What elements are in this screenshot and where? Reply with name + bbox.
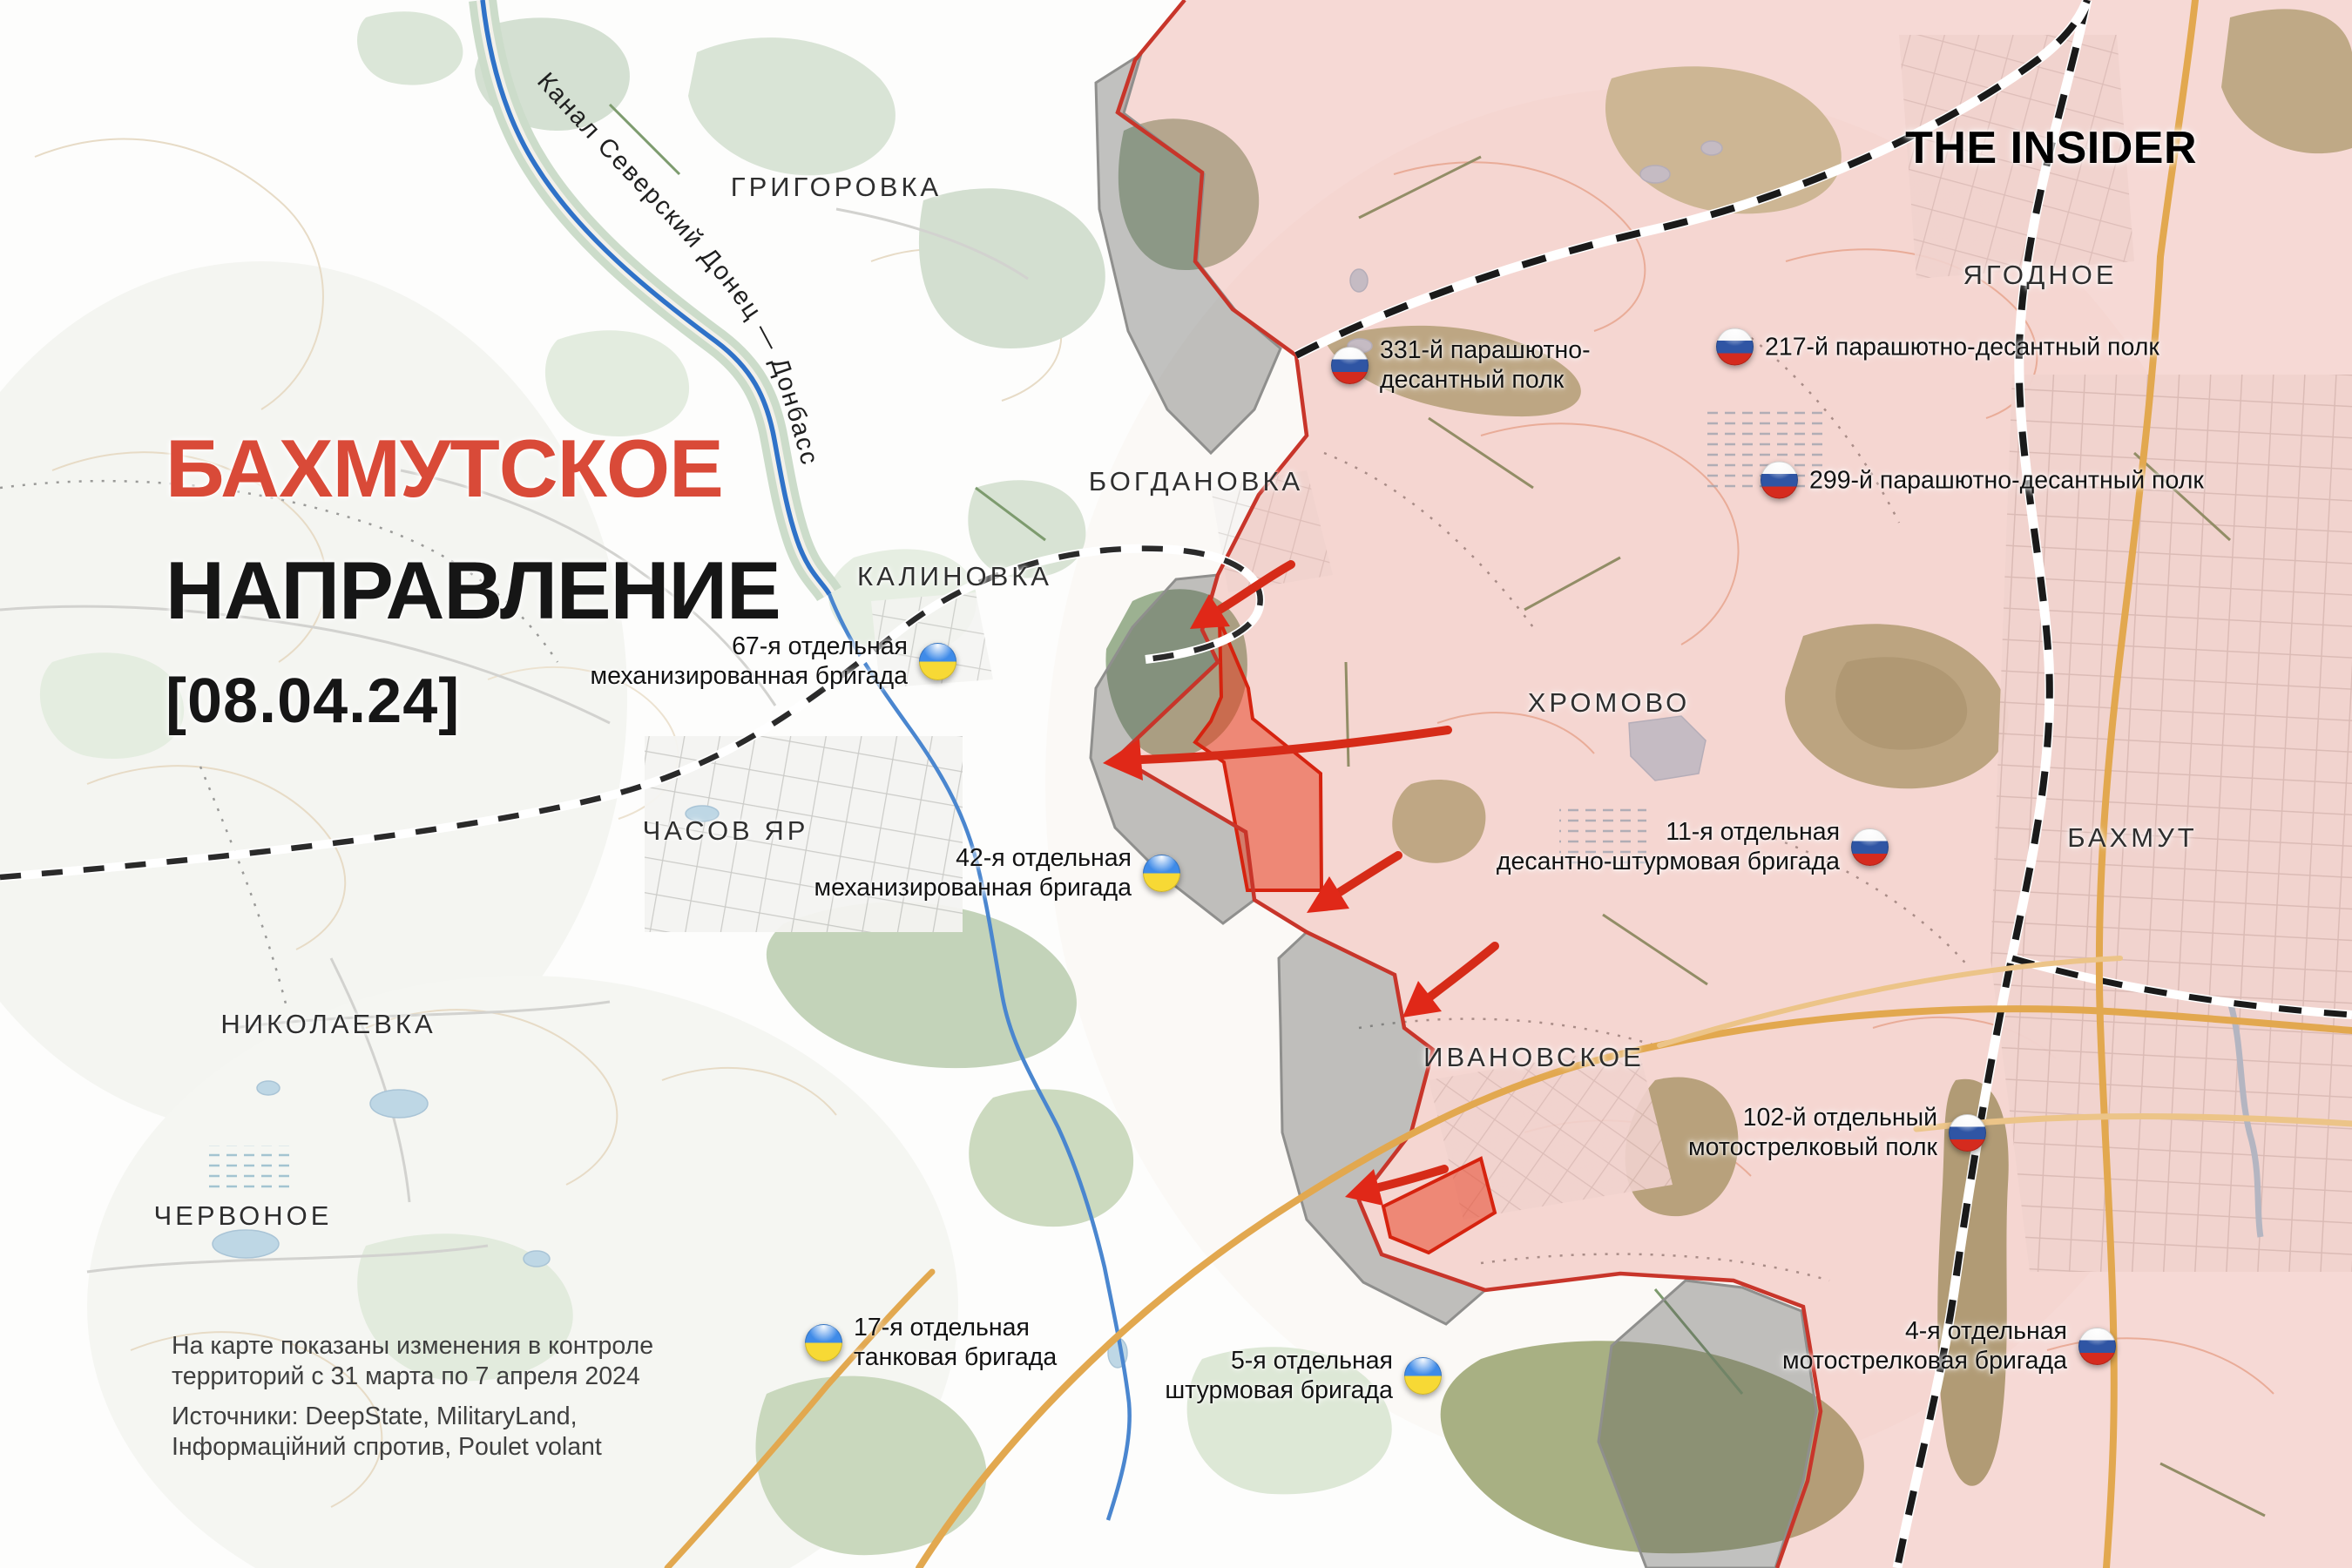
map-title: БАХМУТСКОЕ НАПРАВЛЕНИЕ [08.04.24] <box>166 408 781 737</box>
unit-label-42: 42-я отдельнаямеханизированная бригада <box>814 843 1181 902</box>
unit-label-17: 17-я отдельнаятанковая бригада <box>805 1313 1057 1372</box>
unit-label-text: 11-я отдельнаядесантно-штурмовая бригада <box>1497 817 1840 876</box>
place-label-yagodnoe: ЯГОДНОЕ <box>1963 260 2117 291</box>
unit-label-text: 17-я отдельнаятанковая бригада <box>854 1313 1057 1372</box>
unit-label-line: танковая бригада <box>854 1342 1057 1372</box>
unit-label-line: 331-й парашютно- <box>1380 335 1591 365</box>
russia-flag-icon <box>1949 1114 1986 1152</box>
unit-label-text: 42-я отдельнаямеханизированная бригада <box>814 843 1132 902</box>
bakhmut-direction-map: { "brand": {"logo": "THE INSIDER"}, "tit… <box>0 0 2352 1568</box>
footnote: На карте показаны изменения в контроле т… <box>172 1331 653 1463</box>
unit-label-text: 217-й парашютно-десантный полк <box>1765 332 2159 362</box>
footnote-sources-line-1: Источники: DeepState, MilitaryLand, <box>172 1402 653 1432</box>
unit-label-line: 4-я отдельная <box>1782 1316 2067 1346</box>
unit-label-text: 4-я отдельнаямотострелковая бригада <box>1782 1316 2067 1375</box>
unit-label-line: механизированная бригада <box>814 873 1132 902</box>
unit-label-11: 11-я отдельнаядесантно-штурмовая бригада <box>1497 817 1889 876</box>
unit-label-217: 217-й парашютно-десантный полк <box>1716 328 2159 366</box>
ukraine-flag-icon <box>1404 1357 1442 1395</box>
unit-label-line: мотострелковая бригада <box>1782 1346 2067 1375</box>
ukraine-flag-icon <box>1143 855 1180 892</box>
unit-label-line: десантно-штурмовая бригада <box>1497 847 1840 876</box>
unit-label-line: 17-я отдельная <box>854 1313 1057 1342</box>
russia-flag-icon <box>1851 828 1889 866</box>
russia-flag-icon <box>1331 347 1369 384</box>
footnote-note-line-1: На карте показаны изменения в контроле <box>172 1331 653 1362</box>
unit-label-line: 42-я отдельная <box>814 843 1132 873</box>
place-label-grigorovka: ГРИГОРОВКА <box>731 172 942 203</box>
unit-label-299: 299-й парашютно-десантный полк <box>1761 462 2204 499</box>
ukraine-flag-icon <box>805 1324 842 1362</box>
footnote-note-line-2: территорий с 31 марта по 7 апреля 2024 <box>172 1362 653 1392</box>
unit-label-4: 4-я отдельнаямотострелковая бригада <box>1782 1316 2116 1375</box>
russia-flag-icon <box>1716 328 1754 366</box>
title-line-2: НАПРАВЛЕНИЕ <box>166 530 781 652</box>
unit-label-text: 5-я отдельнаяштурмовая бригада <box>1165 1346 1393 1405</box>
brand-logo: THE INSIDER <box>1905 122 2197 174</box>
russia-flag-icon <box>1761 462 1798 499</box>
place-label-bogdanovka: БОГДАНОВКА <box>1089 466 1303 497</box>
place-label-bakhmut: БАХМУТ <box>2067 822 2197 854</box>
unit-label-line: 5-я отдельная <box>1165 1346 1393 1375</box>
russia-flag-icon <box>2078 1328 2116 1365</box>
unit-label-102: 102-й отдельныймотострелковый полк <box>1688 1103 1986 1162</box>
ukraine-flag-icon <box>919 643 956 680</box>
unit-label-text: 102-й отдельныймотострелковый полк <box>1688 1103 1937 1162</box>
place-label-chervonoe: ЧЕРВОНОЕ <box>154 1200 333 1232</box>
unit-label-line: 217-й парашютно-десантный полк <box>1765 332 2159 362</box>
unit-label-line: 299-й парашютно-десантный полк <box>1809 465 2204 495</box>
unit-label-line: мотострелковый полк <box>1688 1132 1937 1162</box>
unit-label-text: 299-й парашютно-десантный полк <box>1809 465 2204 495</box>
unit-label-line: штурмовая бригада <box>1165 1375 1393 1405</box>
place-label-nikolaevka: НИКОЛАЕВКА <box>220 1009 436 1040</box>
unit-label-331: 331-й парашютно-десантный полк <box>1331 335 1591 395</box>
place-label-chasov-yar: ЧАСОВ ЯР <box>643 815 809 847</box>
unit-label-5: 5-я отдельнаяштурмовая бригада <box>1165 1346 1442 1405</box>
title-date: [08.04.24] <box>166 666 781 737</box>
unit-label-line: десантный полк <box>1380 365 1591 395</box>
footnote-sources-line-2: Інформаційний спротив, Poulet volant <box>172 1432 653 1463</box>
title-line-1: БАХМУТСКОЕ <box>166 408 781 530</box>
unit-label-line: 102-й отдельный <box>1688 1103 1937 1132</box>
unit-label-line: 11-я отдельная <box>1497 817 1840 847</box>
place-label-kalinovka: КАЛИНОВКА <box>857 561 1052 592</box>
place-label-ivanovskoe: ИВАНОВСКОЕ <box>1423 1042 1645 1073</box>
unit-label-text: 331-й парашютно-десантный полк <box>1380 335 1591 395</box>
place-label-khromovo: ХРОМОВО <box>1528 687 1690 719</box>
